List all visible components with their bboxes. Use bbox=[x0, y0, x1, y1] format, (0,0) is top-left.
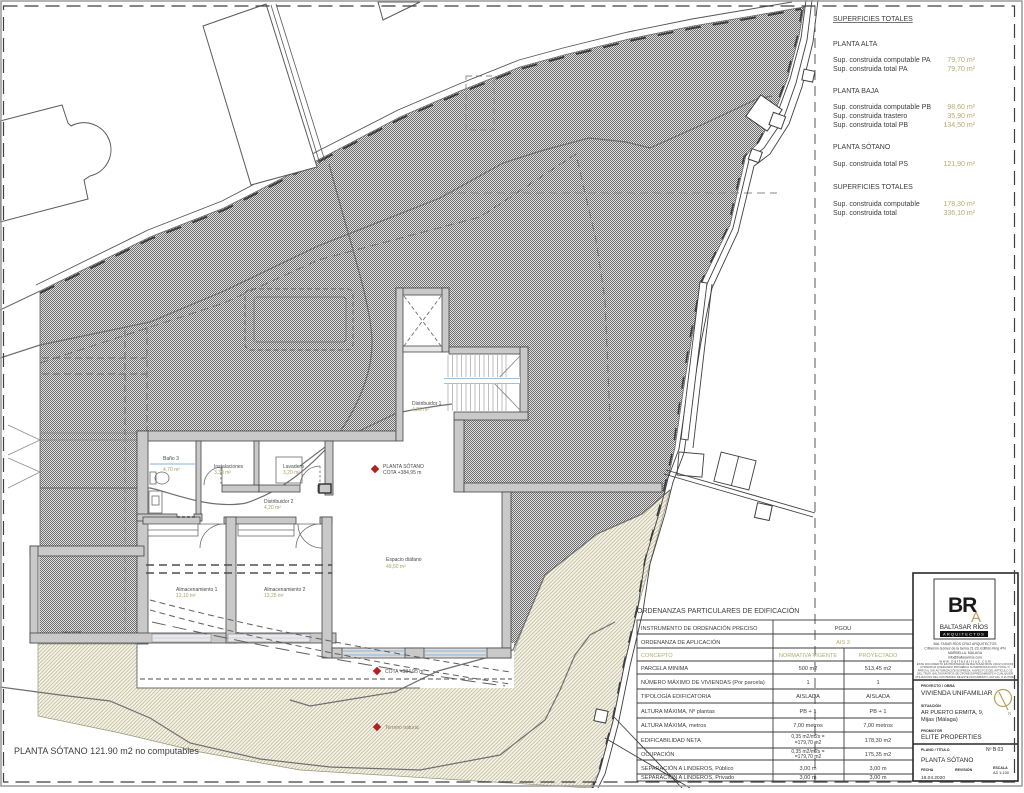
svg-text:VIVIENDA UNIFAMILIAR: VIVIENDA UNIFAMILIAR bbox=[921, 690, 993, 697]
svg-text:134,50 m²: 134,50 m² bbox=[943, 122, 975, 129]
svg-text:Sup. construida total: Sup. construida total bbox=[833, 210, 897, 217]
svg-text:BALTASAR RÍOS: BALTASAR RÍOS bbox=[940, 624, 988, 631]
svg-text:3,00 m: 3,00 m bbox=[799, 766, 816, 772]
svg-text:4,70 m²: 4,70 m² bbox=[163, 467, 180, 473]
svg-text:Mijas (Málaga): Mijas (Málaga) bbox=[921, 717, 958, 723]
svg-text:BAL TASAR RÍOS CRUZ ARQUITECT: BAL TASAR RÍOS CRUZ ARQUITECTOS bbox=[934, 642, 998, 646]
svg-text:3,30 m²: 3,30 m² bbox=[214, 470, 231, 476]
svg-text:AR PUERTO ERMITA, 9,: AR PUERTO ERMITA, 9, bbox=[921, 710, 984, 716]
svg-text:Sup. construida total PB: Sup. construida total PB bbox=[833, 122, 908, 129]
svg-text:PROMOTOR: PROMOTOR bbox=[921, 729, 943, 733]
svg-text:16.04.2020: 16.04.2020 bbox=[921, 775, 945, 781]
svg-text:SEPARACIÓN A LINDEROS, Público: SEPARACIÓN A LINDEROS, Público bbox=[641, 765, 734, 772]
svg-text:SUPERFICIES TOTALES: SUPERFICIES TOTALES bbox=[833, 184, 913, 191]
svg-text:Sup. construida computable: Sup. construida computable bbox=[833, 201, 920, 208]
svg-text:3,20 m²: 3,20 m² bbox=[283, 470, 300, 476]
svg-text:Baño 3: Baño 3 bbox=[163, 456, 179, 462]
svg-text:CONCEPTO: CONCEPTO bbox=[641, 653, 673, 659]
svg-text:35,90 m²: 35,90 m² bbox=[947, 113, 975, 120]
svg-text:=179,70 m2: =179,70 m2 bbox=[795, 754, 822, 760]
svg-text:12,10 m²: 12,10 m² bbox=[176, 593, 196, 599]
svg-text:OCUPACIÓN: OCUPACIÓN bbox=[641, 751, 674, 758]
svg-text:PB + 1: PB + 1 bbox=[800, 709, 817, 715]
svg-text:3,00 m: 3,00 m bbox=[799, 775, 816, 781]
svg-text:513,45 m2: 513,45 m2 bbox=[865, 666, 891, 672]
svg-text:PLANTA SÓTANO 121.90 m2 no com: PLANTA SÓTANO 121.90 m2 no computables bbox=[14, 746, 199, 756]
svg-text:Sup. construida computable PA: Sup. construida computable PA bbox=[833, 57, 931, 64]
svg-text:Espacio diáfano: Espacio diáfano bbox=[386, 557, 422, 563]
svg-text:PLANTA SÓTANO: PLANTA SÓTANO bbox=[833, 142, 891, 151]
svg-text:TIPOLOGÍA EDIFICATORIA: TIPOLOGÍA EDIFICATORIA bbox=[641, 693, 711, 700]
svg-text:ARQUITECTOS: ARQUITECTOS bbox=[943, 632, 985, 637]
svg-text:PB + 1: PB + 1 bbox=[870, 709, 887, 715]
svg-text:ELITE PROPERTIES: ELITE PROPERTIES bbox=[921, 734, 982, 741]
svg-text:PGOU: PGOU bbox=[835, 626, 851, 632]
svg-text:178,30 m2: 178,30 m2 bbox=[865, 738, 891, 744]
svg-text:79,70 m²: 79,70 m² bbox=[947, 66, 975, 73]
svg-text:Sup. construida total PS: Sup. construida total PS bbox=[833, 161, 908, 168]
svg-text:336,10 m²: 336,10 m² bbox=[943, 210, 975, 217]
svg-text:3,00 m: 3,00 m bbox=[869, 766, 886, 772]
svg-text:1: 1 bbox=[806, 680, 809, 686]
svg-text:4,26 m²: 4,26 m² bbox=[412, 407, 429, 413]
svg-text:7,00 metros: 7,00 metros bbox=[863, 723, 893, 729]
svg-text:Sup. construida computable PB: Sup. construida computable PB bbox=[833, 104, 931, 111]
svg-text:4,20 m²: 4,20 m² bbox=[264, 505, 281, 511]
svg-text:AISLADA: AISLADA bbox=[796, 694, 820, 700]
svg-text:SITUACIÓN: SITUACIÓN bbox=[921, 703, 941, 708]
svg-text:A3 1:100: A3 1:100 bbox=[993, 770, 1010, 775]
svg-text:49,50 m²: 49,50 m² bbox=[386, 564, 406, 570]
svg-text:EDIFICABILIDAD NETA: EDIFICABILIDAD NETA bbox=[641, 738, 701, 744]
svg-text:ORDENANZA DE APLICACIÓN: ORDENANZA DE APLICACIÓN bbox=[641, 639, 720, 646]
svg-text:MARBELLA, MÁLAGA: MARBELLA, MÁLAGA bbox=[948, 651, 983, 655]
svg-text:ALTURA MÁXIMA, Nº plantas: ALTURA MÁXIMA, Nº plantas bbox=[641, 708, 715, 715]
svg-text:PROYECTO / OBRA: PROYECTO / OBRA bbox=[921, 684, 955, 688]
svg-text:PROYECTADO: PROYECTADO bbox=[859, 653, 898, 659]
svg-text:Terreno natural: Terreno natural bbox=[385, 725, 419, 731]
svg-text:ORDENANZAS PARTICULARES DE EDI: ORDENANZAS PARTICULARES DE EDIFICACIÓN bbox=[637, 606, 799, 615]
svg-text:13,25 m²: 13,25 m² bbox=[264, 593, 284, 599]
svg-text:500 m2: 500 m2 bbox=[799, 666, 818, 672]
svg-text:INSTRUMENTO DE ORDENACIÓN PREC: INSTRUMENTO DE ORDENACIÓN PRECISO bbox=[641, 625, 758, 632]
svg-text:NÚMERO MÁXIMO DE VIVIENDAS (Po: NÚMERO MÁXIMO DE VIVIENDAS (Por parcela) bbox=[641, 679, 765, 686]
svg-text:Nº B 03: Nº B 03 bbox=[986, 747, 1003, 753]
svg-text:SUPERFICIES TOTALES: SUPERFICIES TOTALES bbox=[833, 16, 913, 23]
svg-text:PLANTA SÓTANO: PLANTA SÓTANO bbox=[383, 463, 424, 470]
svg-text:COTA +384,95 m: COTA +384,95 m bbox=[383, 470, 421, 476]
svg-text:Sup. construida trastero: Sup. construida trastero bbox=[833, 113, 907, 120]
svg-text:N: N bbox=[1008, 711, 1011, 716]
svg-text:COTA +384,95 m: COTA +384,95 m bbox=[385, 669, 423, 675]
svg-text:121,90 m²: 121,90 m² bbox=[943, 161, 975, 168]
svg-text:3,00 m: 3,00 m bbox=[869, 775, 886, 781]
svg-text:PLANTA SÓTANO: PLANTA SÓTANO bbox=[921, 755, 973, 764]
svg-text:1: 1 bbox=[876, 680, 879, 686]
svg-text:AIS 3: AIS 3 bbox=[836, 640, 850, 646]
svg-text:REVISIÓN: REVISIÓN bbox=[955, 767, 973, 772]
svg-text:C/Ramón Gómez de la Serna 21-2: C/Ramón Gómez de la Serna 21-23, Edifici… bbox=[924, 647, 1006, 651]
svg-text:SEPARACIÓN A LINDEROS, Privado: SEPARACIÓN A LINDEROS, Privado bbox=[641, 774, 734, 781]
svg-text:79,70 m²: 79,70 m² bbox=[947, 57, 975, 64]
svg-text:PLANO / TÍTULO: PLANO / TÍTULO bbox=[921, 747, 950, 752]
svg-text:7,00 metros: 7,00 metros bbox=[793, 723, 823, 729]
svg-text:ALTURA MÁXIMA, metros: ALTURA MÁXIMA, metros bbox=[641, 722, 706, 729]
svg-text:178,30 m²: 178,30 m² bbox=[943, 201, 975, 208]
svg-text:AISLADA: AISLADA bbox=[866, 694, 890, 700]
svg-text:=179,70 m2: =179,70 m2 bbox=[795, 740, 822, 746]
svg-text:Sup. construida total PA: Sup. construida total PA bbox=[833, 66, 908, 73]
svg-text:UTILIZACIÓN DEL CONTENIDO DE E: UTILIZACIÓN DEL CONTENIDO DE ESTE DOCUME… bbox=[915, 674, 1015, 679]
svg-text:98,60 m²: 98,60 m² bbox=[947, 104, 975, 111]
svg-text:PARCELA MINIMA: PARCELA MINIMA bbox=[641, 666, 688, 672]
svg-text:PLANTA ALTA: PLANTA ALTA bbox=[833, 41, 878, 48]
svg-text:NORMATIVA VIGENTE: NORMATIVA VIGENTE bbox=[779, 653, 837, 659]
svg-text:FECHA: FECHA bbox=[921, 768, 934, 772]
svg-text:PLANTA BAJA: PLANTA BAJA bbox=[833, 88, 879, 95]
svg-text:175,35 m2: 175,35 m2 bbox=[865, 752, 891, 758]
